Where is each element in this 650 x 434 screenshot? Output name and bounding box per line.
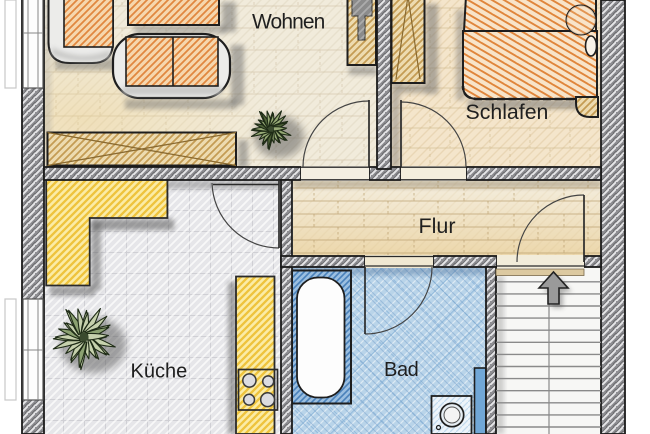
svg-text:Wohnen: Wohnen	[252, 11, 325, 34]
svg-text:Bad: Bad	[384, 359, 418, 381]
svg-text:Schlafen: Schlafen	[466, 100, 549, 124]
svg-text:Flur: Flur	[419, 214, 456, 238]
svg-text:Küche: Küche	[131, 361, 188, 383]
